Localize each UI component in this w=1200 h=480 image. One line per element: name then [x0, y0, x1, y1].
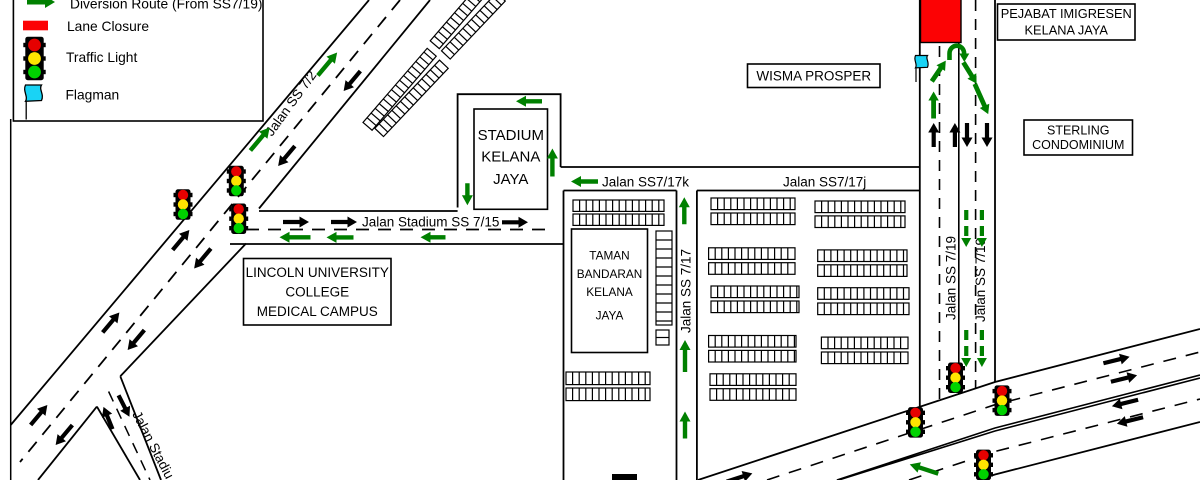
svg-text:Jalan SS7/17k: Jalan SS7/17k [602, 175, 689, 190]
svg-text:COLLEGE: COLLEGE [285, 285, 349, 300]
svg-text:Jalan Stadium SS 7/15: Jalan Stadium SS 7/15 [362, 215, 499, 230]
svg-text:LINCOLN UNIVERSITY: LINCOLN UNIVERSITY [246, 265, 389, 280]
svg-text:Diversion Route (From SS7/19): Diversion Route (From SS7/19) [70, 0, 262, 12]
svg-text:Lane Closure: Lane Closure [67, 19, 149, 34]
svg-text:JAYA: JAYA [596, 309, 624, 323]
svg-text:STERLING: STERLING [1047, 124, 1110, 138]
svg-text:Traffic Light: Traffic Light [66, 50, 137, 65]
svg-text:Jalan SS 7/19: Jalan SS 7/19 [973, 238, 988, 322]
svg-text:TAMAN: TAMAN [589, 249, 629, 263]
svg-text:Flagman: Flagman [66, 88, 120, 103]
svg-text:Jalan SS 7/19: Jalan SS 7/19 [944, 236, 959, 320]
svg-text:PEJABAT IMIGRESEN: PEJABAT IMIGRESEN [1001, 6, 1132, 21]
svg-text:KELANA JAYA: KELANA JAYA [1025, 23, 1109, 38]
svg-text:KELANA: KELANA [481, 149, 540, 166]
svg-text:KELANA: KELANA [586, 285, 633, 299]
svg-text:WISMA PROSPER: WISMA PROSPER [756, 69, 871, 84]
svg-text:Jalan SS 7/17: Jalan SS 7/17 [679, 249, 694, 333]
svg-text:MEDICAL CAMPUS: MEDICAL CAMPUS [257, 304, 378, 319]
svg-text:BANDARAN: BANDARAN [577, 267, 643, 281]
svg-text:Jalan SS7/17j: Jalan SS7/17j [783, 175, 866, 190]
svg-text:CONDOMINIUM: CONDOMINIUM [1032, 138, 1124, 152]
svg-text:STADIUM: STADIUM [478, 127, 544, 144]
svg-text:JAYA: JAYA [493, 171, 528, 188]
